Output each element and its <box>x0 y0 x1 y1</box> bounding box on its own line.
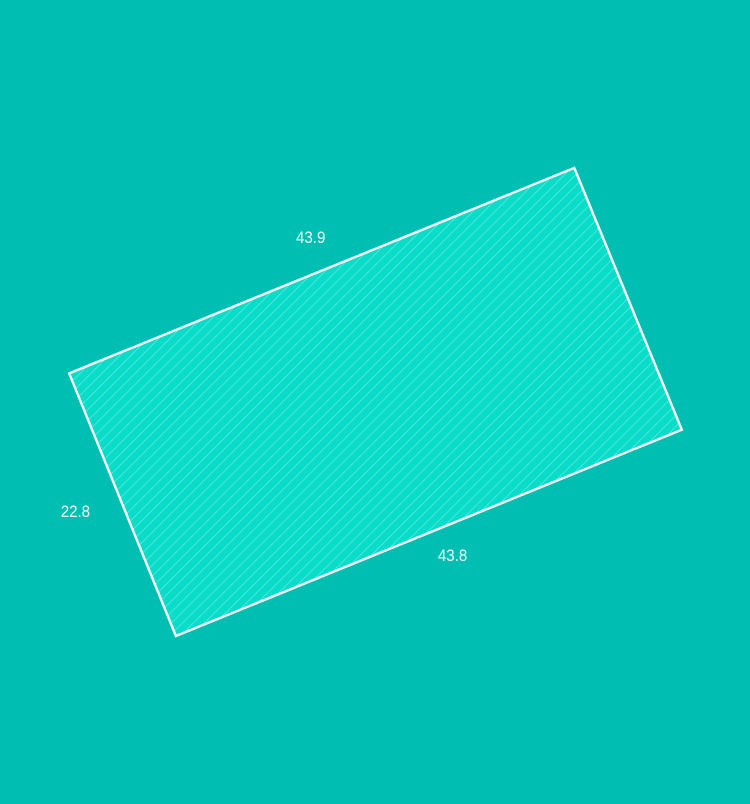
svg-text:43.9: 43.9 <box>296 229 325 247</box>
svg-text:22.8: 22.8 <box>61 503 90 521</box>
svg-text:43.8: 43.8 <box>438 547 467 565</box>
